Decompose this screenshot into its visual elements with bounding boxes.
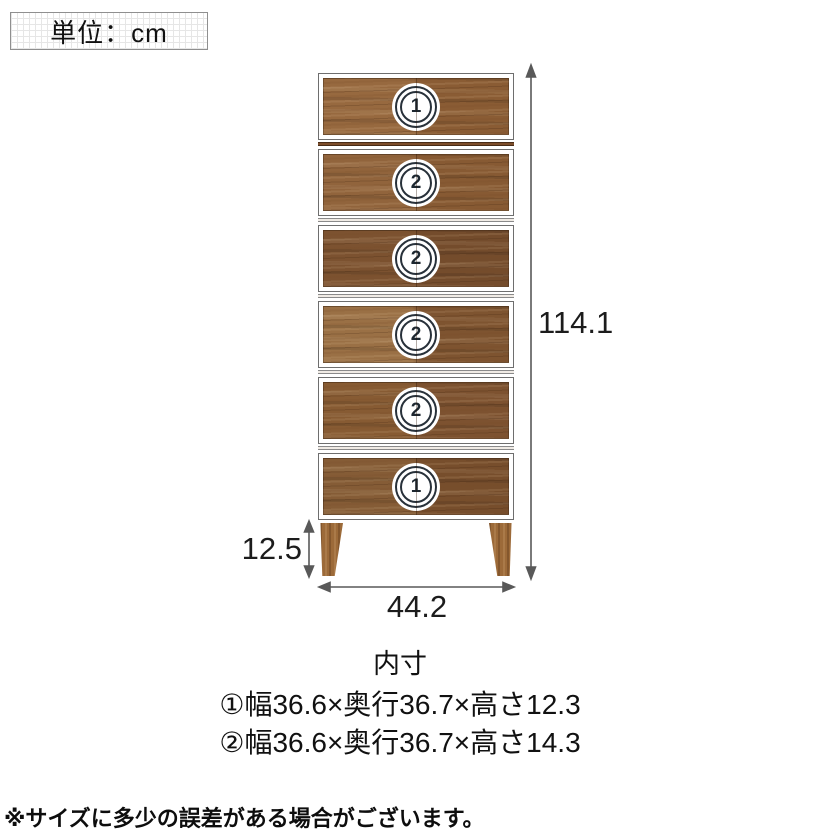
drawer-rail bbox=[318, 142, 514, 146]
arrow-right-icon bbox=[503, 583, 514, 592]
size-disclaimer-note: ※サイズに多少の誤差がある場合がございます。 bbox=[4, 801, 485, 830]
drawer-4-number: 2 bbox=[400, 319, 432, 351]
drawer-rail bbox=[318, 370, 514, 374]
left-leg bbox=[320, 523, 343, 576]
drawer-6-number-badge: 1 bbox=[395, 466, 437, 508]
drawer-1: 1 bbox=[318, 73, 514, 140]
unit-label: 単位：cm bbox=[50, 13, 168, 50]
drawer-4: 2 bbox=[318, 301, 514, 368]
drawer-2: 2 bbox=[318, 149, 514, 216]
arrow-up-icon bbox=[305, 521, 314, 532]
drawer-5-number-badge: 2 bbox=[395, 390, 437, 432]
drawer-5: 2 bbox=[318, 377, 514, 444]
arrow-down-icon bbox=[305, 566, 314, 577]
total-height-value: 114.1 bbox=[538, 305, 613, 341]
drawer-2-number-badge: 2 bbox=[395, 162, 437, 204]
drawer-4-number-badge: 2 bbox=[395, 314, 437, 356]
drawer-2-front: 2 bbox=[323, 154, 509, 211]
arrow-left-icon bbox=[319, 583, 330, 592]
inner-dimensions-block: 内寸 ①幅36.6×奥行36.7×高さ12.3 ②幅36.6×奥行36.7×高さ… bbox=[0, 649, 800, 762]
drawer-rail bbox=[318, 294, 514, 298]
drawer-4-front: 2 bbox=[323, 306, 509, 363]
leg-height-value: 12.5 bbox=[198, 531, 302, 567]
arrow-down-icon bbox=[527, 567, 536, 579]
drawer-5-front: 2 bbox=[323, 382, 509, 439]
drawer-3-number: 2 bbox=[400, 243, 432, 275]
drawer-1-number: 1 bbox=[400, 91, 432, 123]
right-leg bbox=[489, 523, 512, 576]
drawer-rail bbox=[318, 446, 514, 450]
width-value: 44.2 bbox=[337, 589, 497, 625]
drawer-6-number: 1 bbox=[400, 471, 432, 503]
drawer-5-number: 2 bbox=[400, 395, 432, 427]
dimension-diagram: 単位：cm 1 2 2 2 2 bbox=[0, 0, 830, 830]
drawer-1-number-badge: 1 bbox=[395, 86, 437, 128]
drawer-6-front: 1 bbox=[323, 458, 509, 515]
arrow-up-icon bbox=[527, 65, 536, 77]
drawer-3-number-badge: 2 bbox=[395, 238, 437, 280]
drawer-1-front: 1 bbox=[323, 78, 509, 135]
drawer-2-number: 2 bbox=[400, 167, 432, 199]
drawer-3: 2 bbox=[318, 225, 514, 292]
inner-dimension-item-2: ②幅36.6×奥行36.7×高さ14.3 bbox=[0, 724, 800, 762]
drawer-3-front: 2 bbox=[323, 230, 509, 287]
inner-dimension-item-1: ①幅36.6×奥行36.7×高さ12.3 bbox=[0, 686, 800, 724]
inner-dimensions-title: 内寸 bbox=[0, 649, 800, 679]
drawer-6: 1 bbox=[318, 453, 514, 520]
drawer-rail bbox=[318, 218, 514, 222]
unit-box: 単位：cm bbox=[10, 12, 208, 50]
inner-dimensions-list: ①幅36.6×奥行36.7×高さ12.3 ②幅36.6×奥行36.7×高さ14.… bbox=[0, 686, 800, 762]
